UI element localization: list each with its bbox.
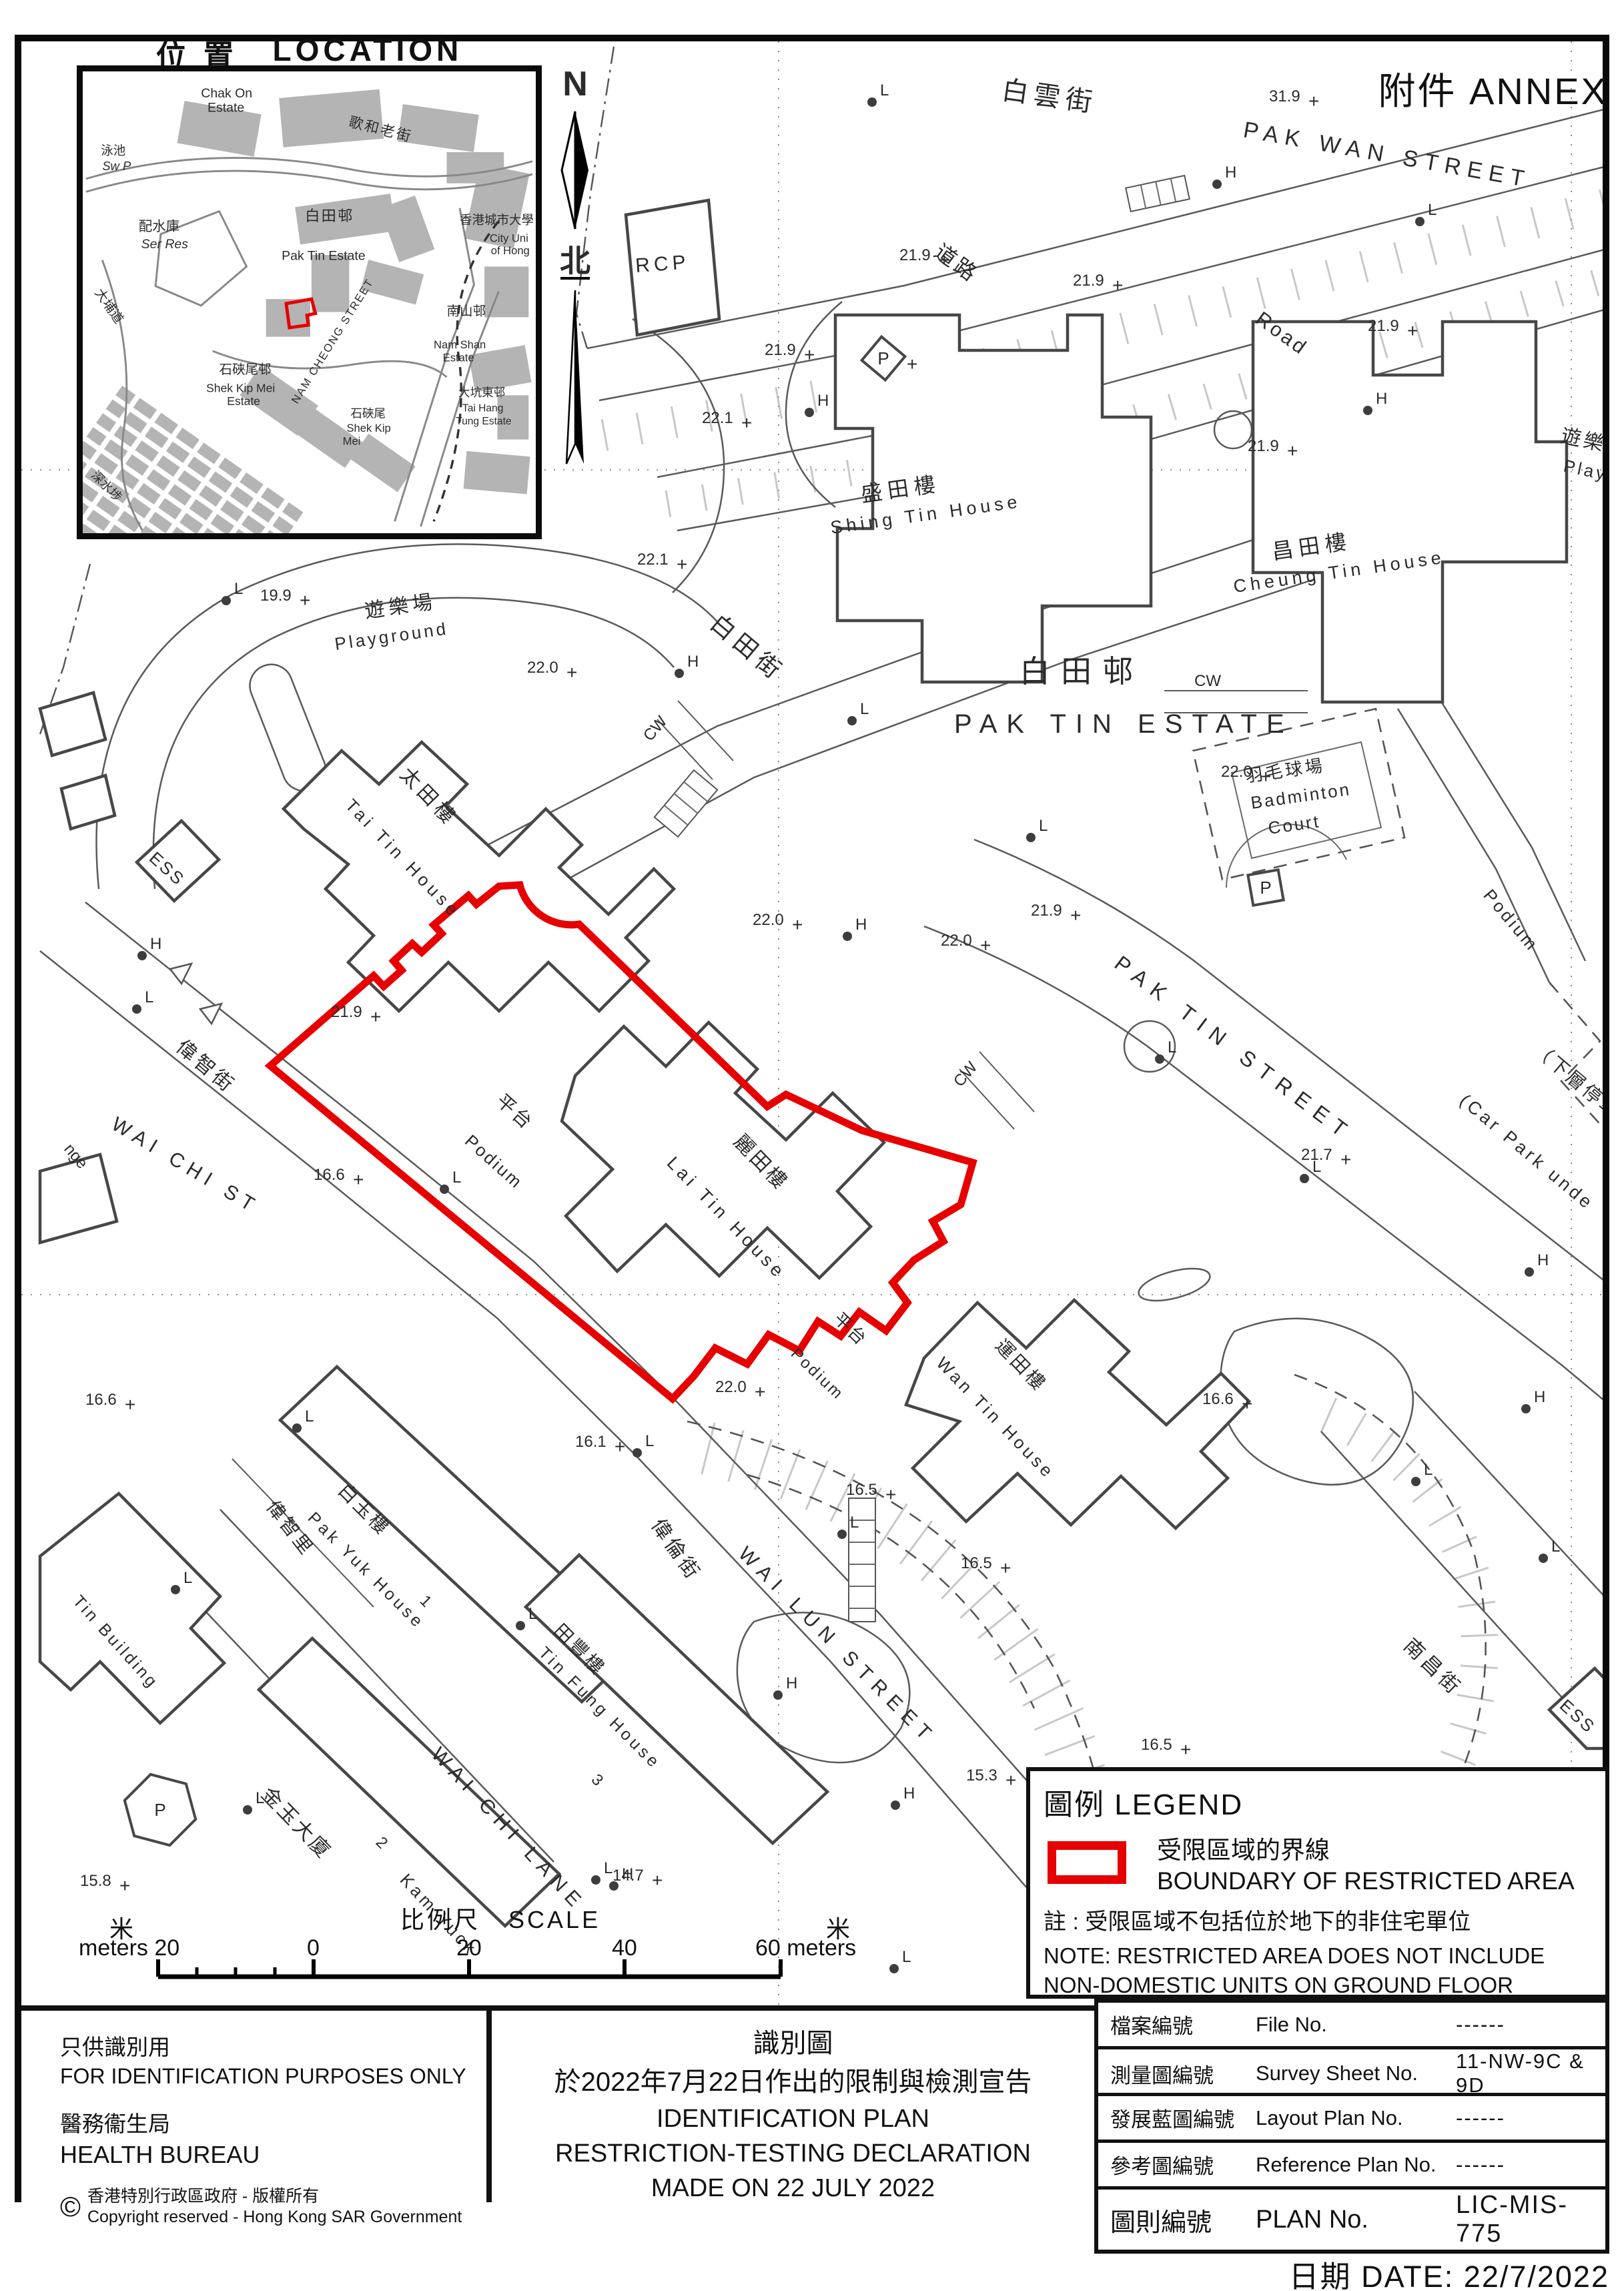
spot-height: 22.0	[1221, 763, 1252, 781]
survey-marker-label: L	[234, 580, 243, 598]
map-label: 偉倫街	[647, 1515, 705, 1585]
road-arrows	[170, 964, 222, 1024]
copyright-symbol: ©	[60, 2191, 81, 2223]
map-label: 平台	[492, 1090, 538, 1134]
survey-marker-label: L	[1312, 1158, 1321, 1176]
row-label-en: Reference Plan No.	[1256, 2153, 1456, 2177]
map-label: (Car Park unde	[1456, 1090, 1598, 1215]
legend-item-zh: 受限區域的界線	[1157, 1830, 1575, 1866]
spot-height-cross: +	[300, 590, 310, 611]
spot-height: 16.6	[314, 1166, 345, 1184]
spot-height: 21.9	[1031, 902, 1062, 920]
map-label: 白田邨	[1020, 654, 1144, 689]
scale-title-en: SCALE	[508, 1906, 600, 1933]
map-label: 1	[416, 1592, 436, 1611]
map-label: （下層停車場	[1529, 1039, 1624, 1137]
spot-height-cross: +	[1287, 440, 1298, 461]
building-wan-tin-house	[906, 1300, 1249, 1528]
spot-height: 21.9	[1248, 437, 1279, 455]
row-label-en: Layout Plan No.	[1256, 2106, 1456, 2130]
spot-height: 15.3	[966, 1766, 997, 1784]
map-label: 南昌街	[1399, 1634, 1467, 1700]
spot-height-cross: +	[370, 1006, 381, 1027]
row-value: ------	[1456, 2106, 1593, 2130]
inset-label: 配水庫	[139, 219, 179, 234]
survey-marker-label: H	[903, 1784, 915, 1803]
plan-info-table: 檔案編號 File No. ------ 測量圖編號 Survey Sheet …	[1094, 1999, 1609, 2254]
survey-marker-dot	[1212, 180, 1222, 189]
spot-height-cross: +	[980, 935, 991, 956]
scale-bar: 比例尺 SCALE 米 米 meters 20 0 20 40 60 meter…	[67, 1901, 907, 1981]
row-label-zh: 測量圖編號	[1110, 2059, 1256, 2089]
survey-marker-label: L	[645, 1432, 654, 1450]
survey-marker-label: H	[1537, 1251, 1549, 1269]
survey-marker-dot	[773, 1690, 783, 1700]
map-label: 道路	[930, 240, 983, 287]
survey-marker-dot	[847, 716, 857, 725]
spot-height-cross: +	[885, 1484, 896, 1505]
restricted-area-swatch	[1048, 1841, 1126, 1884]
spot-height: 16.1	[575, 1433, 606, 1451]
spot-height: 16.5	[1141, 1736, 1172, 1754]
parking-label: P	[877, 348, 889, 368]
inset-label: 南山邨	[447, 304, 486, 318]
identification-plan-page: 白雲街PAK WAN STREET道路RoadRCP盛田樓Shing Tin H…	[0, 0, 1624, 2291]
survey-marker-dot	[633, 1448, 642, 1457]
survey-marker-dot	[292, 1423, 302, 1433]
title-block: 識別圖 於2022年7月22日作出的限制與檢測宣告 IDENTIFICATION…	[492, 2005, 1094, 2202]
spot-height: 19.9	[260, 587, 292, 605]
plan-subtitle-zh: 於2022年7月22日作出的限制與檢測宣告	[492, 2060, 1094, 2099]
survey-marker-dot	[1026, 833, 1036, 842]
row-label-zh: 發展藍圖編號	[1110, 2103, 1256, 2133]
survey-marker-label: L	[850, 1514, 859, 1532]
annex-title: 附件 ANNEX	[1301, 61, 1608, 115]
building-small-1	[40, 693, 105, 755]
legend-item: 受限區域的界線 BOUNDARY OF RESTRICTED AREA	[1044, 1830, 1592, 1895]
date-line: 日期 DATE: 22/7/2022	[934, 2252, 1609, 2291]
survey-marker-label: L	[305, 1407, 314, 1425]
scale-bar-rule	[67, 1958, 907, 1981]
spot-height-cross: +	[1112, 275, 1123, 296]
row-value: LIC-MIS-775	[1456, 2191, 1593, 2248]
identification-block: 只供識別用 FOR IDENTIFICATION PURPOSES ONLY 醫…	[21, 2005, 492, 2202]
inset-label: Chak On	[201, 86, 252, 101]
inset-label: Tung Estate	[456, 416, 511, 427]
survey-marker-label: L	[256, 1789, 264, 1807]
survey-marker-dot	[1525, 1267, 1534, 1277]
inset-label: 泳池	[101, 143, 125, 157]
inset-label: Estate	[443, 352, 474, 364]
legend-item-en: BOUNDARY OF RESTRICTED AREA	[1157, 1867, 1575, 1895]
map-label: CW	[640, 713, 671, 745]
inset-label: Sw P	[102, 159, 131, 173]
spot-height: 15.8	[80, 1872, 111, 1890]
inset-label: 大埔道	[91, 286, 126, 326]
spot-height: 21.9	[1368, 317, 1399, 335]
survey-marker-dot	[171, 1585, 180, 1594]
inset-label: 石硤尾邨	[220, 362, 272, 377]
scale-title-zh: 比例尺	[400, 1906, 480, 1933]
row-value: 11-NW-9C & 9D	[1456, 2049, 1593, 2097]
spot-height-cross: +	[677, 554, 687, 575]
survey-marker-dot	[440, 1185, 449, 1194]
map-label: 金玉大廈	[257, 1783, 336, 1864]
survey-marker-label: L	[183, 1569, 192, 1587]
map-label: WAI LUN STREET	[734, 1543, 940, 1749]
spot-height-cross: +	[652, 1870, 663, 1891]
survey-marker-dot	[1155, 1054, 1164, 1064]
spot-height: 21.9	[1073, 272, 1104, 290]
survey-marker-dot	[222, 596, 231, 605]
bureau-en: HEALTH BUREAU	[60, 2141, 486, 2169]
spot-height-cross: +	[1005, 1770, 1016, 1790]
survey-marker-label: L	[528, 1605, 537, 1623]
map-label: Playground	[334, 618, 450, 654]
table-row-reference-plan: 參考圖編號 Reference Plan No. ------	[1098, 2143, 1605, 2190]
spot-height-cross: +	[1000, 1558, 1011, 1578]
spot-height-cross: +	[1242, 1393, 1252, 1414]
map-label: CW	[1194, 672, 1221, 690]
map-label: RCP	[635, 251, 690, 277]
map-label: 遊樂場	[1559, 425, 1624, 460]
survey-marker-label: H	[622, 1865, 633, 1883]
spot-height-cross: +	[755, 1381, 765, 1402]
survey-marker-label: L	[860, 700, 869, 718]
inset-label: Shek Kip	[347, 422, 391, 434]
survey-marker-dot	[132, 1004, 141, 1014]
survey-marker-dot	[675, 669, 684, 678]
scale-title: 比例尺 SCALE	[400, 1901, 600, 1935]
map-label: PAK WAN STREET	[1242, 117, 1533, 192]
map-label: 3	[588, 1770, 607, 1790]
survey-marker-label: H	[817, 392, 829, 410]
spot-height: 16.5	[846, 1481, 877, 1499]
map-label: 偉智街	[172, 1036, 240, 1098]
survey-marker-dot	[609, 1881, 619, 1891]
spot-height: 22.1	[637, 551, 669, 569]
table-row-layout-plan: 發展藍圖編號 Layout Plan No. ------	[1098, 2096, 1605, 2143]
north-char: 北	[560, 244, 590, 278]
survey-marker-label: L	[1551, 1538, 1560, 1556]
survey-marker-dot	[1411, 1477, 1420, 1486]
survey-marker-dot	[1539, 1554, 1548, 1563]
row-value: ------	[1456, 2013, 1593, 2037]
survey-marker-dot	[1415, 217, 1425, 226]
survey-marker-label: L	[1428, 201, 1437, 219]
map-label: 遊樂場	[363, 591, 438, 623]
spot-height: 22.0	[753, 911, 784, 929]
spot-height: 22.1	[702, 409, 733, 427]
building-tai-tin-house	[284, 742, 674, 1011]
spot-height: 22.0	[527, 659, 558, 677]
bureau-zh: 醫務衞生局	[60, 2106, 486, 2138]
survey-marker-label: H	[855, 916, 867, 934]
survey-marker-dot	[805, 408, 814, 417]
survey-marker-dot	[1300, 1174, 1309, 1183]
map-label: WAI CHI ST	[107, 1113, 263, 1219]
inset-label: 香港城市大學	[460, 213, 534, 227]
spot-height-cross: +	[792, 914, 803, 935]
row-label-en: PLAN No.	[1256, 2206, 1456, 2234]
survey-marker-dot	[837, 1530, 847, 1539]
row-label-en: File No.	[1256, 2013, 1456, 2037]
survey-marker-label: H	[150, 935, 161, 953]
inset-label: of Hong	[491, 244, 530, 257]
spot-height-cross: +	[615, 1436, 625, 1457]
survey-marker-dot	[1363, 406, 1372, 415]
spot-height: 31.9	[1269, 87, 1300, 105]
inset-label: 石硤尾	[350, 406, 386, 420]
spot-height: 22.0	[715, 1378, 747, 1396]
survey-marker-label: L	[604, 1859, 613, 1877]
survey-marker-dot	[891, 1801, 900, 1810]
map-label: Podium	[1479, 886, 1543, 956]
legend: 圖例 LEGEND 受限區域的界線 BOUNDARY OF RESTRICTED…	[1026, 1767, 1609, 1999]
inset-label: Ser Res	[141, 237, 189, 252]
inset-label: 白田邨	[305, 208, 354, 224]
spot-height-cross: +	[119, 1875, 130, 1896]
spot-height-cross: +	[804, 344, 815, 365]
legend-title: 圖例 LEGEND	[1044, 1780, 1592, 1823]
survey-marker-label: L	[1039, 817, 1048, 835]
copyright-en: Copyright reserved - Hong Kong SAR Gover…	[87, 2207, 462, 2228]
building-small-2	[61, 775, 115, 829]
legend-note-en-2: NON-DOMESTIC UNITS ON GROUND FLOOR	[1044, 1971, 1592, 2000]
survey-marker-label: L	[880, 81, 889, 99]
row-label-zh: 參考圖編號	[1110, 2150, 1256, 2180]
map-label: PAK TIN STREET	[1110, 951, 1358, 1147]
spot-height-cross: +	[353, 1169, 364, 1190]
row-label-en: Survey Sheet No.	[1256, 2061, 1456, 2085]
id-en: FOR IDENTIFICATION PURPOSES ONLY	[60, 2064, 486, 2089]
copyright: © 香港特別行政區政府 - 版權所有 Copyright reserved - …	[60, 2186, 486, 2228]
legend-note-en: NOTE: RESTRICTED AREA DOES NOT INCLUDE N…	[1044, 1941, 1592, 1999]
id-zh: 只供識別用	[60, 2029, 486, 2061]
survey-marker-dot	[243, 1805, 252, 1815]
survey-marker-dot	[843, 932, 852, 941]
table-row-file-no: 檔案編號 File No. ------	[1098, 2003, 1605, 2049]
map-label: 白田街	[705, 609, 790, 687]
survey-marker-label: H	[786, 1674, 797, 1692]
spot-height-cross: +	[1070, 905, 1081, 926]
map-label: 白雲街	[1000, 75, 1100, 118]
spot-height: 21.9	[899, 246, 931, 264]
row-label-zh: 檔案編號	[1110, 2009, 1256, 2039]
parking-label: P	[154, 1800, 165, 1820]
map-label: Podium	[787, 1345, 847, 1403]
location-inset-map: Chak OnEstate歌和老街泳池Sw P配水庫Ser Res白田邨Pak …	[83, 71, 536, 533]
table-row-plan-no: 圖則編號 PLAN No. LIC-MIS-775	[1098, 2190, 1605, 2250]
location-inset: Chak OnEstate歌和老街泳池Sw P配水庫Ser Res白田邨Pak …	[77, 65, 542, 539]
survey-marker-dot	[516, 1621, 525, 1630]
building-cheung-tin-house	[1253, 322, 1567, 702]
inset-label: Pak Tin Estate	[282, 249, 366, 264]
spot-height-cross: +	[939, 250, 949, 270]
survey-marker-label: H	[687, 653, 699, 671]
building-tin-building	[40, 1494, 224, 1723]
survey-marker-label: H	[1376, 390, 1387, 408]
survey-marker-label: L	[452, 1169, 461, 1187]
map-label: PAK TIN ESTATE	[954, 709, 1294, 739]
spot-height: 16.6	[85, 1391, 117, 1409]
survey-marker-label: H	[1225, 163, 1236, 182]
survey-marker-dot	[867, 97, 877, 107]
spot-height-cross: +	[741, 412, 752, 433]
inset-label: Mei	[343, 434, 361, 447]
spot-height: 16.5	[961, 1554, 992, 1572]
spot-height-cross: +	[1260, 766, 1271, 787]
map-label: Podium	[461, 1130, 527, 1193]
survey-marker-label: H	[1534, 1388, 1545, 1406]
spot-height-cross: +	[125, 1394, 135, 1415]
plan-subtitle-en: RESTRICTION-TESTING DECLARATION	[492, 2140, 1094, 2168]
row-label-zh: 圖則編號	[1110, 2202, 1256, 2238]
legend-note-en-1: NOTE: RESTRICTED AREA DOES NOT INCLUDE	[1044, 1941, 1592, 1971]
plan-date-en: MADE ON 22 JULY 2022	[492, 2174, 1094, 2203]
survey-marker-label: L	[145, 988, 153, 1006]
inset-label: Estate	[227, 394, 260, 408]
map-label: 2	[372, 1833, 392, 1853]
spot-height: 16.6	[1202, 1390, 1234, 1408]
inset-label: Nam Shan	[434, 338, 486, 351]
copyright-zh: 香港特別行政區政府 - 版權所有	[87, 2186, 462, 2207]
plan-title-en: IDENTIFICATION PLAN	[492, 2105, 1094, 2134]
map-label: Playground	[1562, 456, 1624, 499]
spot-height: 21.9	[331, 1003, 362, 1021]
parking-label: P	[1260, 878, 1271, 898]
spot-height-cross: +	[566, 662, 577, 683]
spot-height-cross: +	[1340, 1149, 1351, 1170]
survey-marker-dot	[1521, 1404, 1531, 1413]
survey-marker-label: L	[1424, 1461, 1433, 1479]
inset-label: Shek Kip Mei	[206, 381, 275, 394]
survey-marker-dot	[591, 1875, 600, 1885]
spot-height-cross: +	[907, 354, 917, 374]
survey-marker-label: L	[1168, 1038, 1176, 1056]
spot-height: 21.9	[765, 341, 796, 359]
spot-height: 22.0	[941, 932, 972, 950]
north-letter: N	[562, 65, 588, 103]
map-label: Court	[1267, 811, 1322, 838]
inset-label: City Uni	[490, 232, 528, 244]
map-label: CW	[950, 1058, 981, 1090]
survey-marker-dot	[137, 951, 147, 960]
table-row-survey-sheet: 測量圖編號 Survey Sheet No. 11-NW-9C & 9D	[1098, 2049, 1605, 2096]
north-arrow: N 北	[534, 63, 621, 477]
legend-note-zh: 註 : 受限區域不包括位於地下的非住宅單位	[1044, 1903, 1592, 1936]
inset-label: 大坑東邨	[458, 386, 505, 399]
inset-label: Tai Hang	[462, 403, 503, 414]
plan-title-zh: 識別圖	[492, 2021, 1094, 2060]
map-label: 偉智里	[262, 1497, 318, 1560]
spot-height-cross: +	[1180, 1739, 1191, 1760]
spot-height-cross: +	[1407, 320, 1418, 341]
row-value: ------	[1456, 2153, 1593, 2177]
inset-label: Estate	[208, 101, 244, 115]
